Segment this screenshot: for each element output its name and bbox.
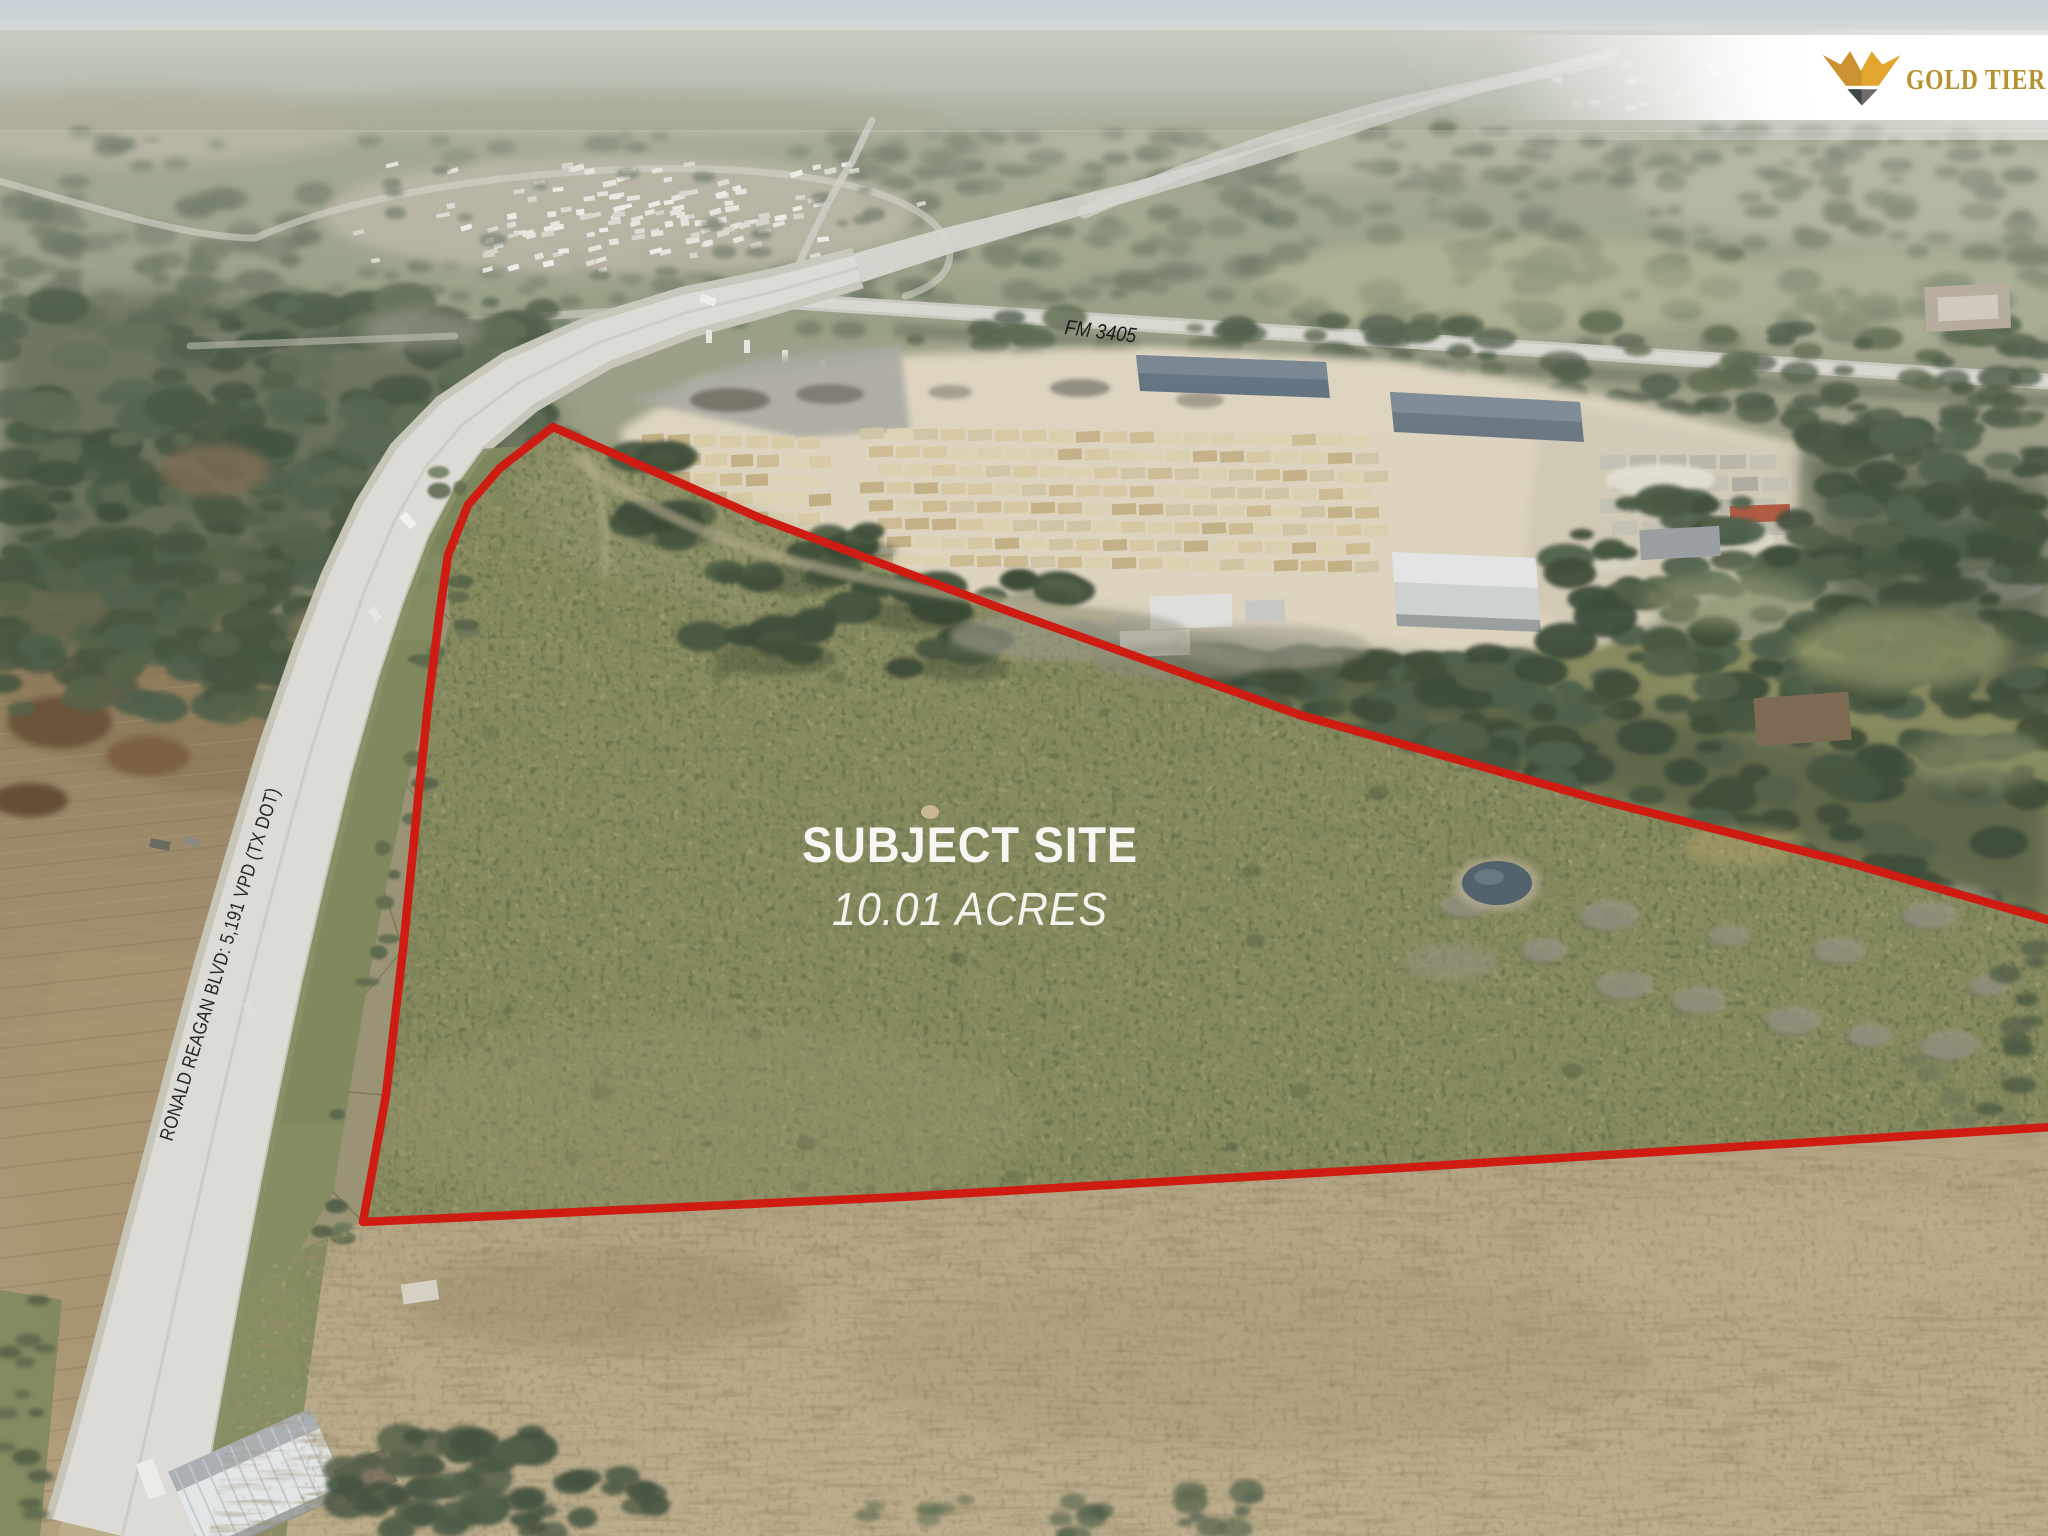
svg-text:GOLD TIER: GOLD TIER bbox=[1906, 65, 2046, 96]
svg-text:SUBJECT SITE: SUBJECT SITE bbox=[802, 817, 1138, 873]
svg-text:10.01 ACRES: 10.01 ACRES bbox=[832, 883, 1108, 935]
